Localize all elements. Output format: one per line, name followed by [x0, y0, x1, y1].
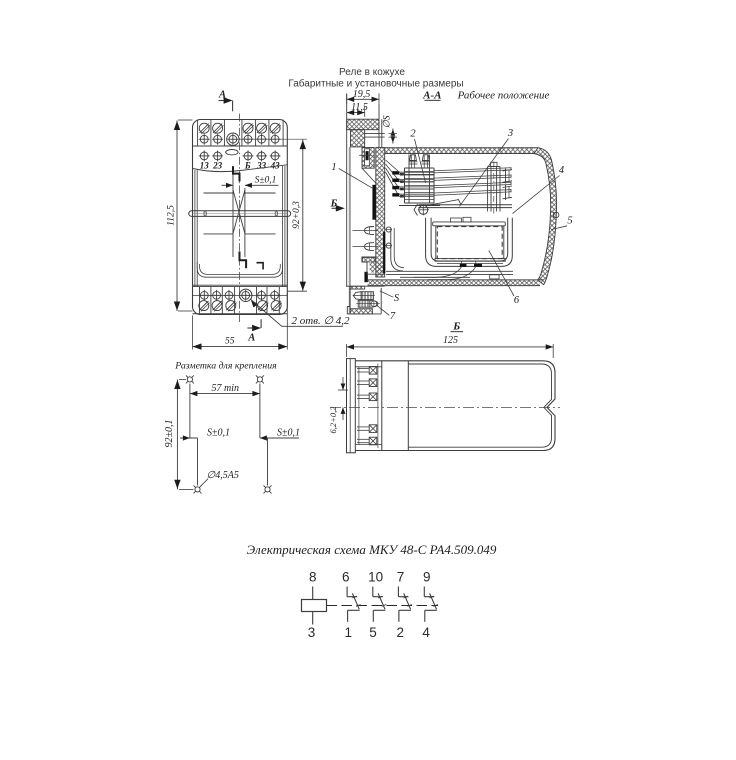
svg-text:2: 2 — [396, 625, 404, 640]
svg-text:Б: Б — [244, 160, 251, 170]
svg-text:9: 9 — [423, 570, 431, 585]
svg-text:Разметка для крепления: Разметка для крепления — [174, 360, 277, 371]
svg-text:Габаритные и установочные разм: Габаритные и установочные размеры — [288, 78, 463, 90]
svg-text:7: 7 — [397, 570, 405, 585]
svg-text:13: 13 — [200, 160, 210, 170]
svg-text:∅4,5А5: ∅4,5А5 — [207, 470, 239, 481]
svg-text:А-А: А-А — [422, 89, 441, 101]
svg-text:4: 4 — [559, 165, 565, 176]
svg-text:S±0,1: S±0,1 — [277, 427, 300, 438]
svg-text:57 min: 57 min — [212, 383, 240, 394]
svg-text:19,5: 19,5 — [353, 89, 371, 100]
svg-text:6: 6 — [342, 570, 350, 585]
svg-text:Электрическая схема МКУ 48-С Р: Электрическая схема МКУ 48-С РА4.509.049 — [247, 542, 497, 557]
svg-text:3: 3 — [507, 128, 513, 139]
svg-text:2 отв. ∅ 4,2: 2 отв. ∅ 4,2 — [292, 315, 351, 327]
svg-text:5: 5 — [567, 216, 572, 227]
svg-text:А: А — [218, 90, 226, 101]
svg-text:8: 8 — [309, 570, 317, 585]
svg-text:А: А — [247, 333, 255, 344]
svg-text:∅S: ∅S — [383, 115, 393, 128]
svg-text:Реле в кожухе: Реле в кожухе — [339, 67, 405, 78]
svg-text:4: 4 — [422, 625, 430, 640]
svg-text:S±0,1: S±0,1 — [207, 427, 230, 438]
svg-text:7: 7 — [390, 311, 396, 322]
svg-text:Б: Б — [452, 321, 460, 333]
svg-text:6: 6 — [514, 295, 520, 306]
svg-text:6,2+0,2: 6,2+0,2 — [328, 406, 338, 434]
svg-text:23: 23 — [212, 160, 223, 170]
svg-text:2: 2 — [410, 129, 416, 140]
svg-text:55: 55 — [225, 337, 235, 347]
svg-text:5: 5 — [369, 625, 377, 640]
svg-text:S: S — [394, 293, 400, 304]
svg-text:92+0,3: 92+0,3 — [292, 201, 302, 229]
svg-text:1: 1 — [344, 625, 352, 640]
svg-text:3: 3 — [308, 625, 316, 640]
svg-text:10: 10 — [368, 570, 383, 585]
svg-text:1: 1 — [331, 162, 336, 173]
svg-text:112,5: 112,5 — [166, 205, 176, 226]
svg-text:S±0,1: S±0,1 — [255, 175, 277, 185]
svg-text:Рабочее положение: Рабочее положение — [457, 89, 550, 101]
svg-text:43: 43 — [270, 160, 281, 170]
svg-text:92±0,1: 92±0,1 — [164, 420, 175, 448]
svg-text:125: 125 — [443, 335, 458, 346]
